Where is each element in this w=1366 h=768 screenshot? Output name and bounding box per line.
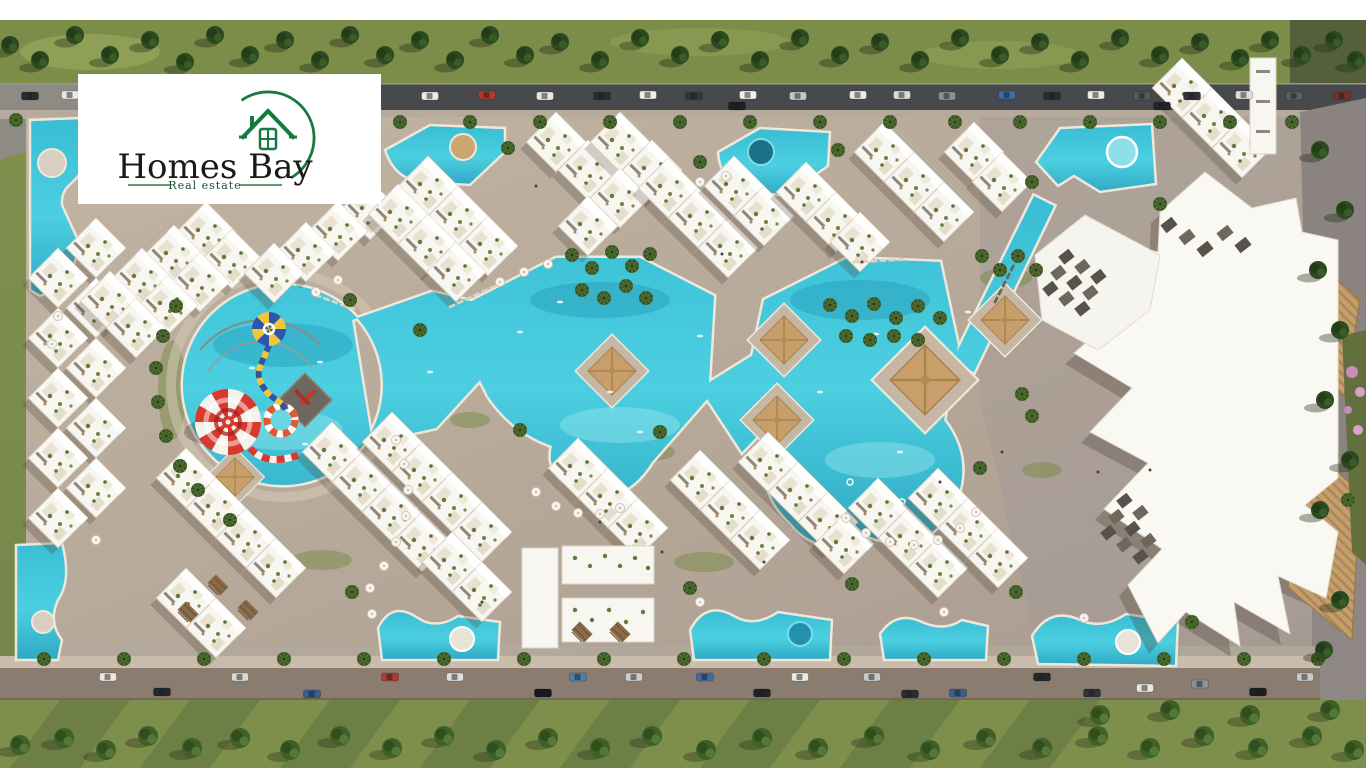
tagline-text: Real estate [168,179,241,192]
beach-ball [252,312,286,346]
homes-bay-logo: Homes Bay Real estate [78,74,381,204]
top-white-strip [0,0,1366,20]
tower-slab [522,548,558,648]
masterplan-scene: Homes Bay Real estate [0,0,1366,768]
house-icon [239,111,297,149]
logo-card: Homes Bay Real estate [78,74,381,204]
bottom-road-edge [0,698,1320,700]
pool-bottom-1 [16,543,66,660]
bottom-road [0,668,1320,700]
